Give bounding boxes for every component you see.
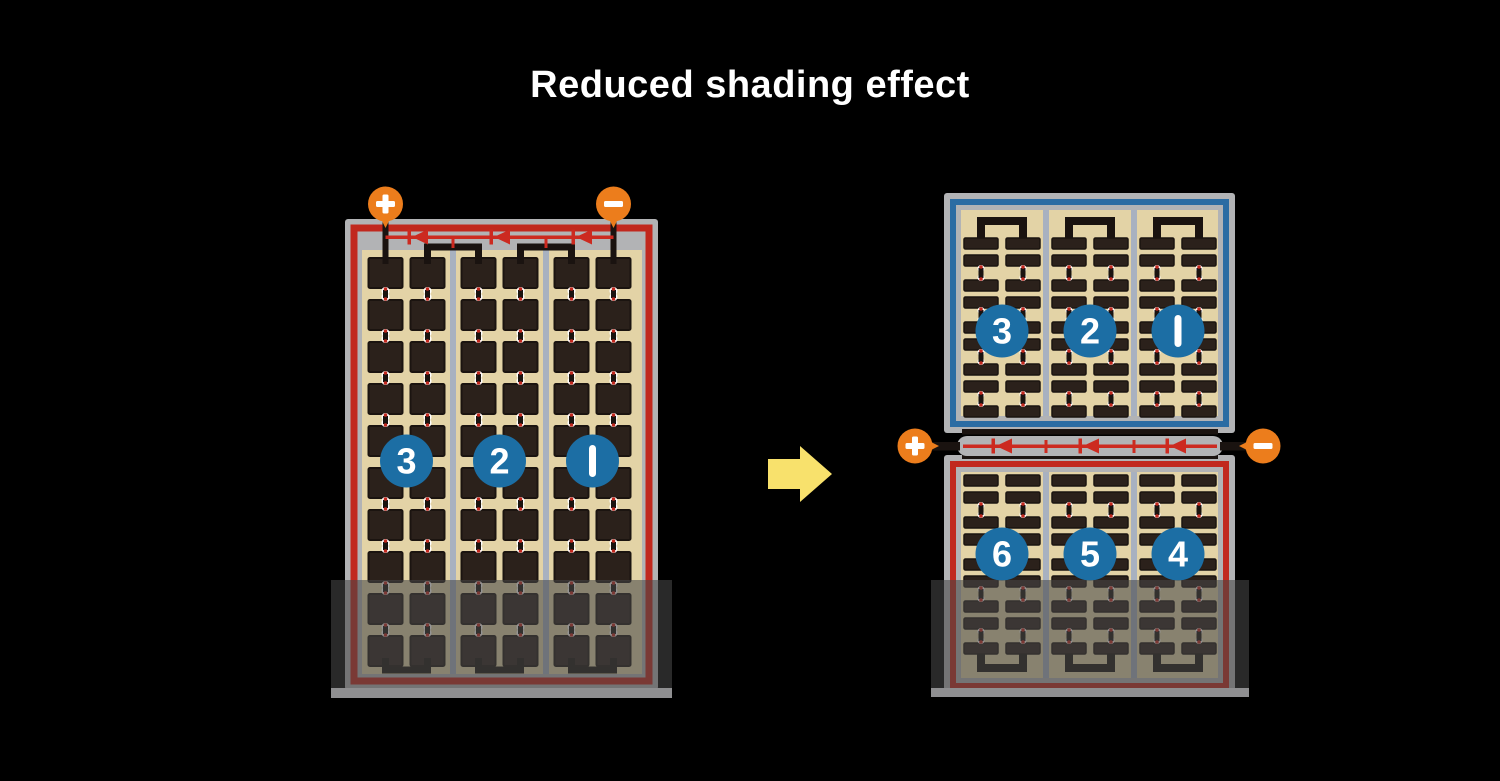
- half-cut-cell: [1140, 280, 1174, 291]
- half-cut-cell: [1182, 364, 1216, 375]
- cell-connector: [1066, 502, 1073, 518]
- circle-label: [589, 445, 596, 477]
- solar-cell: [369, 300, 403, 330]
- string-number-circle: 2: [473, 435, 526, 488]
- half-cut-cell: [1140, 475, 1174, 486]
- half-cut-cell: [1094, 238, 1128, 249]
- half-cut-cell: [1182, 475, 1216, 486]
- half-cut-cell: [964, 381, 998, 392]
- solar-cell: [369, 342, 403, 372]
- half-cut-cell: [964, 492, 998, 503]
- string-number-circle: 3: [380, 435, 433, 488]
- cell-connector: [1196, 349, 1203, 365]
- cell-connector: [1020, 502, 1027, 518]
- string-number-circle: 5: [1064, 528, 1117, 581]
- negative-terminal: [1239, 429, 1281, 464]
- half-cut-cell: [1052, 238, 1086, 249]
- half-cut-cell: [964, 517, 998, 528]
- half-cut-cell: [1094, 475, 1128, 486]
- cell-connector: [1020, 391, 1027, 407]
- shade-band: [331, 580, 672, 698]
- solar-cell: [462, 552, 496, 582]
- cell-connector: [1108, 265, 1115, 281]
- half-cut-cell: [1006, 492, 1040, 503]
- half-cut-cell: [1052, 364, 1086, 375]
- left-panel: 32: [331, 187, 672, 699]
- half-cut-cell: [964, 406, 998, 417]
- solar-cell: [597, 510, 631, 540]
- half-cut-cell: [1140, 238, 1174, 249]
- string-separator: [1131, 210, 1137, 416]
- cell-connector: [1066, 391, 1073, 407]
- string-number-circle: 6: [976, 528, 1029, 581]
- solar-cell: [411, 384, 445, 414]
- circle-label: [1175, 315, 1182, 347]
- shading-effect-diagram: 3232654: [0, 0, 1500, 781]
- plus-symbol-vertical: [912, 437, 918, 456]
- solar-cell: [462, 300, 496, 330]
- shade-band: [931, 580, 1249, 697]
- minus-symbol: [1254, 443, 1273, 449]
- solar-cell: [504, 300, 538, 330]
- solar-cell: [369, 384, 403, 414]
- cell-connector: [1154, 265, 1161, 281]
- solar-cell: [597, 342, 631, 372]
- diode-tap: [1045, 440, 1048, 453]
- solar-cell: [369, 552, 403, 582]
- cell-connector: [1066, 265, 1073, 281]
- circle-label: 3: [396, 441, 416, 482]
- string-number-circle: 3: [976, 305, 1029, 358]
- circle-label: 4: [1168, 534, 1188, 575]
- circle-label: 3: [992, 311, 1012, 352]
- half-cut-cell: [1094, 381, 1128, 392]
- solar-cell: [597, 384, 631, 414]
- half-cut-cell: [1182, 238, 1216, 249]
- circle-label: 2: [1080, 311, 1100, 352]
- cell-connector: [1108, 502, 1115, 518]
- diode-tap: [452, 237, 455, 248]
- half-cut-cell: [1182, 517, 1216, 528]
- circle-label: 5: [1080, 534, 1100, 575]
- cell-connector: [1066, 349, 1073, 365]
- solar-cell: [504, 552, 538, 582]
- half-cut-cell: [1182, 381, 1216, 392]
- half-cut-cell: [1006, 381, 1040, 392]
- cell-connector: [978, 391, 985, 407]
- half-cut-cell: [1140, 517, 1174, 528]
- half-cut-cell: [1006, 280, 1040, 291]
- half-cut-cell: [1094, 492, 1128, 503]
- diagram-stage: Reduced shading effect 3232654: [0, 0, 1500, 781]
- solar-cell: [504, 384, 538, 414]
- solar-cell: [462, 384, 496, 414]
- cell-connector: [1196, 502, 1203, 518]
- half-cut-cell: [1052, 517, 1086, 528]
- circle-label: 2: [489, 441, 509, 482]
- solar-cell: [411, 300, 445, 330]
- half-cut-cell: [1052, 280, 1086, 291]
- solar-cell: [597, 552, 631, 582]
- cell-connector: [1020, 349, 1027, 365]
- minus-symbol: [604, 201, 623, 207]
- half-cut-cell: [1006, 364, 1040, 375]
- half-cut-cell: [1094, 406, 1128, 417]
- solar-cell: [555, 300, 589, 330]
- half-cut-cell: [1094, 364, 1128, 375]
- half-cut-cell: [1140, 381, 1174, 392]
- half-cut-cell: [964, 238, 998, 249]
- string-number-circle: 4: [1152, 528, 1205, 581]
- positive-terminal: [898, 429, 940, 464]
- half-cut-cell: [1052, 255, 1086, 266]
- solar-cell: [597, 300, 631, 330]
- half-cut-cell: [1052, 492, 1086, 503]
- cell-connector: [1108, 349, 1115, 365]
- half-cut-cell: [1006, 475, 1040, 486]
- cell-connector: [1196, 265, 1203, 281]
- string-number-circle: [566, 435, 619, 488]
- half-cut-cell: [1182, 255, 1216, 266]
- diode-tap: [545, 237, 548, 248]
- half-cut-cell: [1052, 381, 1086, 392]
- diode-tap: [1133, 440, 1136, 453]
- half-cut-cell: [964, 280, 998, 291]
- half-cut-cell: [1006, 255, 1040, 266]
- solar-cell: [555, 384, 589, 414]
- string-separator: [1043, 210, 1049, 416]
- cell-connector: [1154, 349, 1161, 365]
- string-number-circle: 2: [1064, 305, 1117, 358]
- half-cut-cell: [964, 475, 998, 486]
- half-cut-cell: [1006, 238, 1040, 249]
- cell-connector: [1154, 502, 1161, 518]
- solar-cell: [369, 510, 403, 540]
- solar-cell: [555, 552, 589, 582]
- string-bus-wire: [962, 429, 1218, 435]
- half-cut-cell: [964, 255, 998, 266]
- solar-cell: [504, 510, 538, 540]
- cell-connector: [1154, 391, 1161, 407]
- half-cut-cell: [1094, 517, 1128, 528]
- half-cut-cell: [1052, 475, 1086, 486]
- plus-symbol-vertical: [383, 195, 389, 214]
- cell-connector: [978, 502, 985, 518]
- half-cut-cell: [964, 364, 998, 375]
- half-cut-cell: [1140, 406, 1174, 417]
- half-cut-cell: [1140, 255, 1174, 266]
- cell-connector: [978, 349, 985, 365]
- solar-cell: [555, 342, 589, 372]
- solar-cell: [411, 510, 445, 540]
- string-number-circle: [1152, 305, 1205, 358]
- half-cut-cell: [1140, 492, 1174, 503]
- solar-cell: [555, 510, 589, 540]
- cell-connector: [978, 265, 985, 281]
- half-cut-cell: [1094, 255, 1128, 266]
- solar-cell: [411, 342, 445, 372]
- half-cut-cell: [1140, 364, 1174, 375]
- half-cut-cell: [1094, 280, 1128, 291]
- half-cut-cell: [1006, 517, 1040, 528]
- half-cut-cell: [1006, 406, 1040, 417]
- cell-connector: [1020, 265, 1027, 281]
- half-cut-cell: [1182, 406, 1216, 417]
- half-cut-cell: [1052, 406, 1086, 417]
- solar-cell: [462, 342, 496, 372]
- right-top-panel: 32: [944, 193, 1235, 433]
- half-cut-cell: [1182, 280, 1216, 291]
- solar-cell: [504, 342, 538, 372]
- solar-cell: [411, 552, 445, 582]
- cell-connector: [1108, 391, 1115, 407]
- solar-cell: [462, 510, 496, 540]
- circle-label: 6: [992, 534, 1012, 575]
- half-cut-cell: [1182, 492, 1216, 503]
- cell-connector: [1196, 391, 1203, 407]
- transition-arrow: [768, 446, 832, 502]
